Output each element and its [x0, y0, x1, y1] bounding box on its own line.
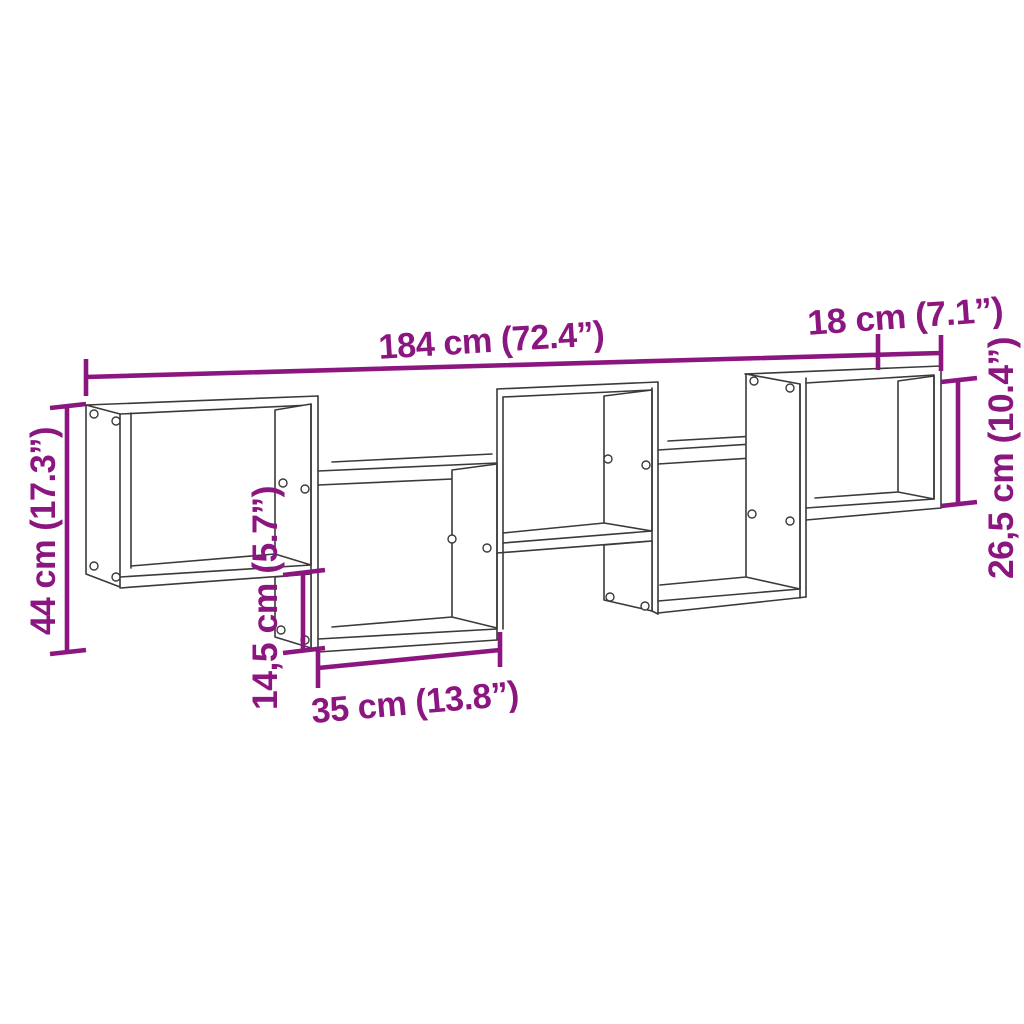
hole [786, 384, 794, 392]
hole [483, 544, 491, 552]
divider1-front-edges [311, 396, 318, 652]
dim-line-compartment-height [941, 378, 977, 506]
divider2-front-edges [497, 389, 503, 640]
hole [448, 535, 456, 543]
dimension-lines [50, 334, 977, 688]
cube5-right-wall [898, 376, 934, 499]
hole [748, 510, 756, 518]
mounting-holes [90, 377, 794, 644]
hole [90, 562, 98, 570]
hole [112, 417, 120, 425]
hole [279, 479, 287, 487]
hole [642, 461, 650, 469]
left-end-panel [86, 405, 120, 587]
hole [112, 573, 120, 581]
dimension-label-stagger-height: 14,5 cm (5.7”) [246, 486, 285, 710]
hole [606, 593, 614, 601]
dimension-label-compartment-width: 35 cm (13.8”) [310, 674, 521, 731]
hole [604, 455, 612, 463]
divider3-bottom-join [652, 611, 658, 614]
dimension-label-depth: 18 cm (7.1”) [806, 290, 1004, 343]
shelf-structure [86, 366, 941, 652]
hole [301, 485, 309, 493]
hole [641, 602, 649, 610]
hole [786, 517, 794, 525]
dimension-label-compartment-height: 26,5 cm (10.4”) [982, 337, 1021, 579]
right-end-edges [934, 366, 941, 508]
dimension-label-total-width: 184 cm (72.4”) [377, 314, 605, 367]
dimension-diagram: 184 cm (72.4”) 18 cm (7.1”) 44 cm (17.3”… [0, 0, 1024, 1024]
divider3-front-edges [652, 382, 658, 614]
wall-shelf-line-drawing: 184 cm (72.4”) 18 cm (7.1”) 44 cm (17.3”… [0, 0, 1024, 1024]
dimension-label-total-height: 44 cm (17.3”) [24, 427, 63, 635]
hole [750, 377, 758, 385]
hole [90, 410, 98, 418]
divider4-face [746, 374, 800, 589]
divider4-front-edges [800, 378, 806, 598]
